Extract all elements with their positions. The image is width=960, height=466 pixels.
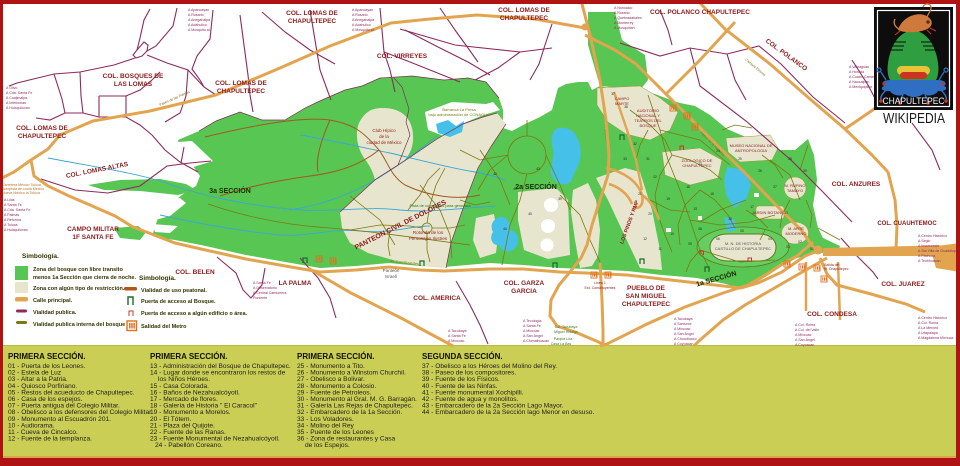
svg-text:CHAPULTEPEC: CHAPULTEPEC — [883, 96, 945, 106]
svg-text:WIKIPEDIA: WIKIPEDIA — [883, 110, 945, 127]
